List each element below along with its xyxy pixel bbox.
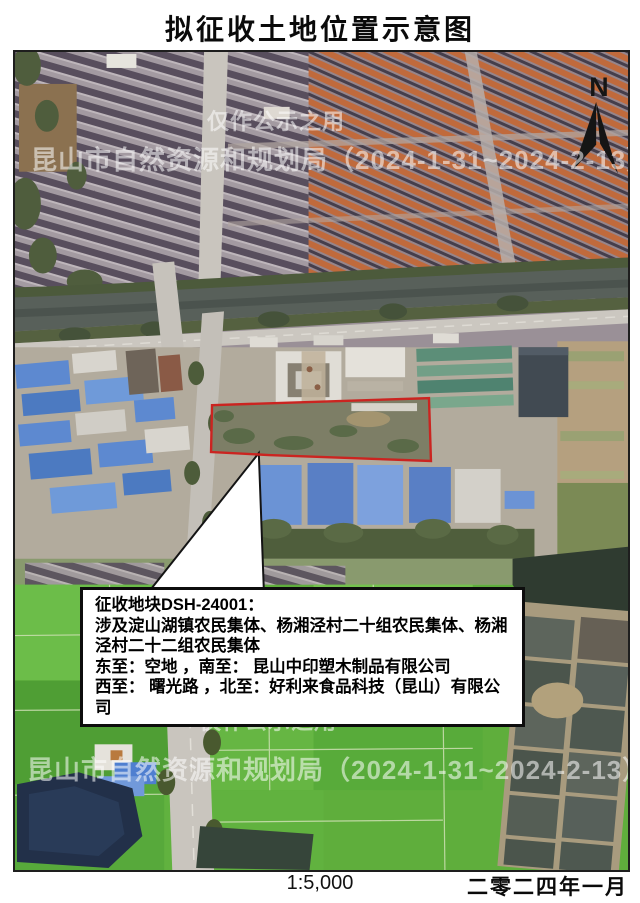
callout-parcel-id: 征收地块DSH-24001： [95,595,512,616]
parcel-area [211,398,431,461]
map-date: 二零二四年一月 [467,871,628,901]
callout-collectives-1: 涉及淀山湖镇农民集体、杨湘泾村二十组农民集体、杨湘 [95,616,512,637]
callout-west-north: 西至： 曙光路 ，北至：好利来食品科技（昆山）有限公司 [95,677,512,718]
north-label: N [589,72,608,102]
callout-east-south: 东至：空地 ，南至： 昆山中印塑木制品有限公司 [95,657,512,678]
callout-collectives-2: 泾村二十二组农民集体 [95,636,512,657]
satellite-imagery: N [15,52,628,870]
page-title: 拟征收土地位置示意图 [0,8,640,48]
map-frame: N 仅作公示之用 昆山市自然资源和规划局（2024-1-31~2024-2-13… [13,50,630,872]
parcel-callout-box: 征收地块DSH-24001： 涉及淀山湖镇农民集体、杨湘泾村二十组农民集体、杨湘… [80,587,525,727]
